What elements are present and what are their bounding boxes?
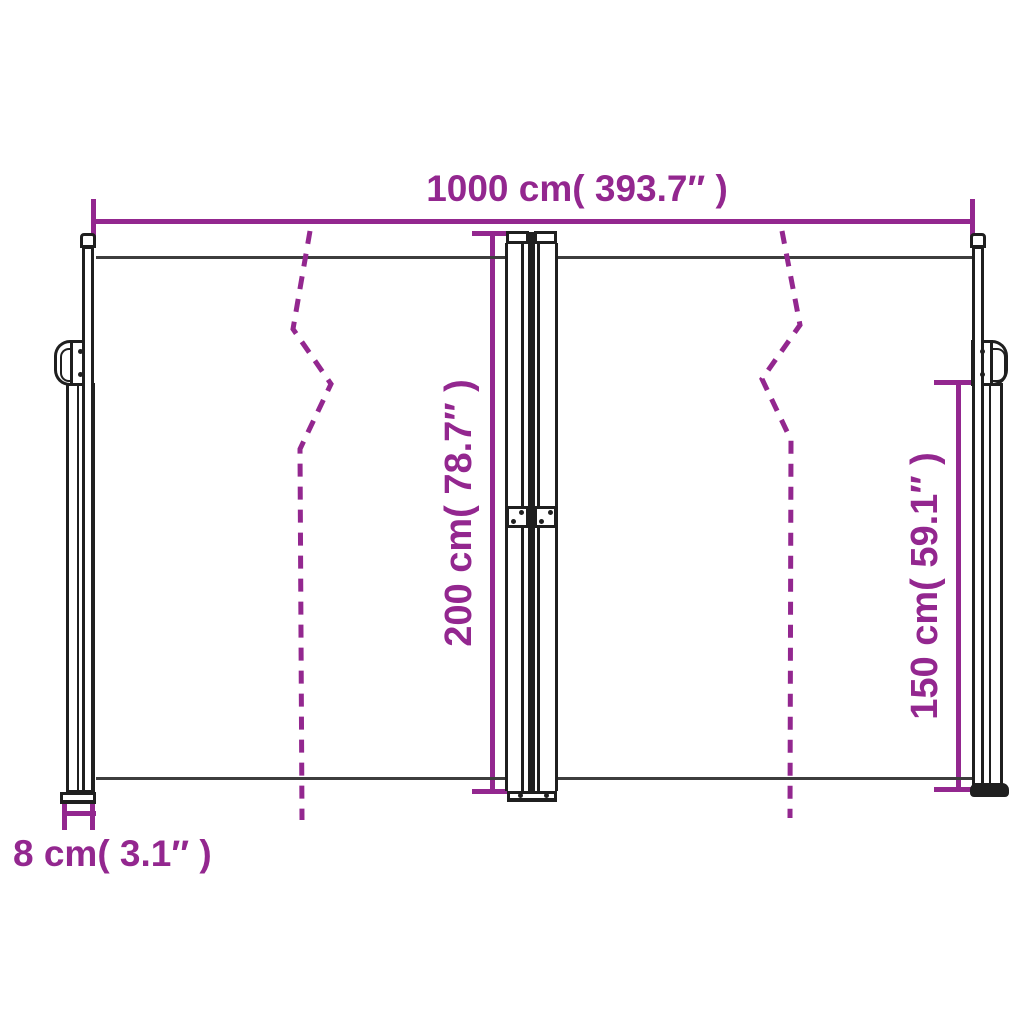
left-fold-dashed-line — [293, 231, 331, 820]
fold-dashed-lines — [0, 0, 1024, 1024]
awning-dimension-diagram: 1000 cm( 393.7″ ) 200 cm( 78.7″ ) 150 cm… — [0, 0, 1024, 1024]
right-fold-dashed-line — [762, 231, 800, 818]
